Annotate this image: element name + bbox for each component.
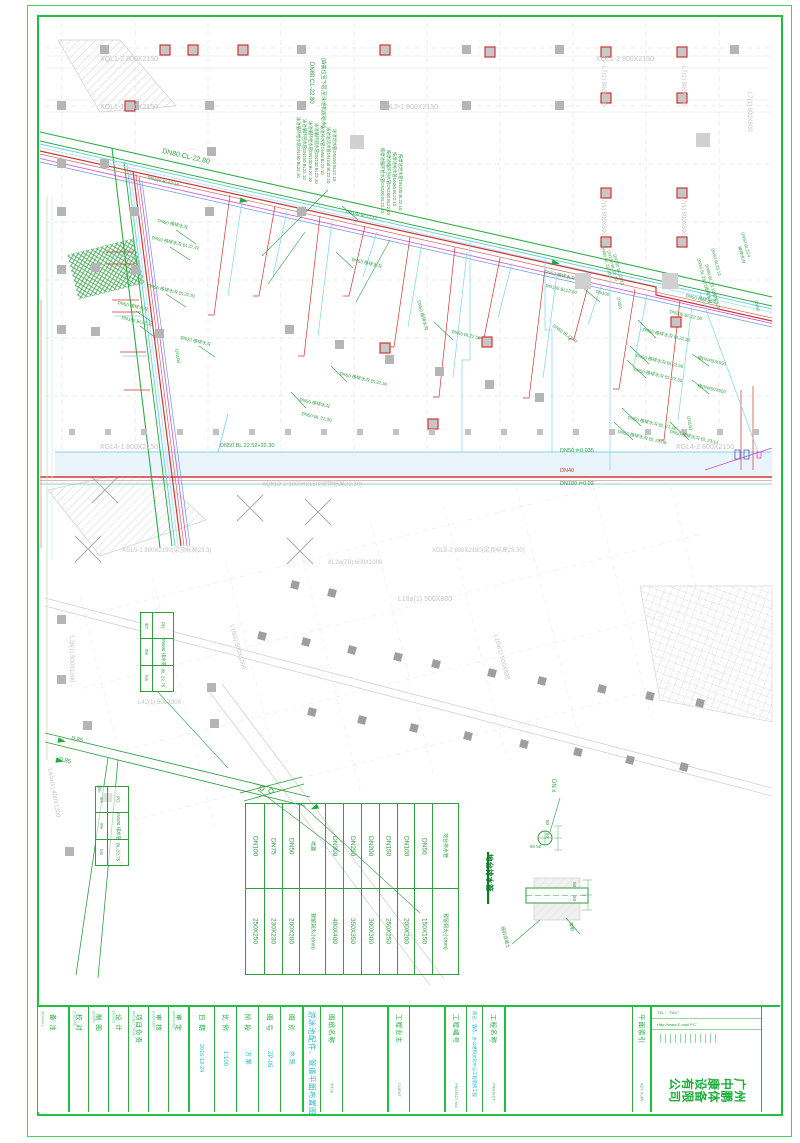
pd-riser-tag: 编号 管径 标高 PD DN100 排水管 BL 22.75 (95, 786, 129, 866)
tb-date-value: 2015-12-24 (198, 1044, 204, 1072)
pd-tag-value: DN100 排水管 (115, 813, 121, 839)
pd-tag-row-label: 管径 (145, 649, 149, 655)
pd-tag-row-label: 编号 (100, 797, 104, 803)
tb-drawing-title: 游泳池配件、管道平面布置图 (302, 1007, 320, 1112)
tb-key-plan-area (504, 1007, 632, 1112)
title-block: REMARKS 备 注 CHECKED 校 对 DRAWN 制 图 DESIGN… (38, 1005, 780, 1112)
pd-tag-value: PD (116, 796, 121, 802)
tb-key-plan-label: 平面索引 KEY PLAN (632, 1007, 650, 1112)
tb-sign-cell: DRAWN 制 图 (88, 1007, 108, 1112)
tb-drawing-no-value: ZP-05 (266, 1051, 273, 1067)
tb-sign-cell: APPROVED 审 定 (168, 1007, 188, 1112)
tb-remarks: REMARKS 备 注 (38, 1007, 68, 1112)
company-contact: Http://www E-mail P.C： (652, 1019, 761, 1031)
tb-project-no: 工程编号 PROJECT NO. (444, 1007, 466, 1112)
pd-tag-value: PD (161, 622, 166, 628)
tb-sign-cell: PROJECT CHIEF 项目负责 (128, 1007, 148, 1112)
project-description: 商业、酒店、办公楼和文化中心工程装修工程 (472, 1011, 477, 1097)
floor-drain-detail (487, 798, 592, 944)
pd-tag-row-label: 标高 (100, 849, 104, 855)
tb-client: 工程业主 CLIENT (387, 1007, 409, 1112)
tb-empty (342, 1007, 387, 1112)
tb-project-label: 工程名称 PROJECT (482, 1007, 504, 1112)
tilted-squares (257, 580, 705, 772)
tb-date: 日 期 2015-12-24 (188, 1007, 214, 1112)
pd-tag-value: DN100 排水管 (160, 639, 166, 665)
tb-stage: 阶 段 方 案 (236, 1007, 258, 1112)
company-name: 广州中鹏康体设备有限公司 (668, 1078, 746, 1106)
pd-riser-tag: 编号 管径 标高 PD DN100 排水管 BL 22.75 (140, 612, 174, 692)
tb-company: TEL： FAX： Http://www E-mail P.C： 广州中鹏康体设… (650, 1007, 761, 1112)
hatch-area (58, 40, 176, 112)
tb-scale: 比 例 1:100 (214, 1007, 236, 1112)
tb-sign-cell: EXAMINED 审 核 (148, 1007, 168, 1112)
pd-tag-value: BL 22.75 (161, 669, 166, 687)
tb-empty (761, 1007, 780, 1112)
tb-remarks-sub: REMARKS (40, 1011, 44, 1027)
tb-title-label: 图纸名称 TITLE (320, 1007, 342, 1112)
company-cert-bars (652, 1030, 761, 1045)
pd-tag-row-label: 管径 (100, 823, 104, 829)
tb-discipline-value: 水 施 (288, 1051, 295, 1065)
pd-tag-value: BL 22.75 (116, 843, 121, 861)
cad-drawing-page: XQL1-2 800X2150XQL1-2 800X2150XQL1-1 800… (0, 0, 800, 1143)
tb-remarks-label: 备 注 (49, 1014, 56, 1032)
tb-empty (409, 1007, 444, 1112)
pd-tag-row-label: 编号 (145, 623, 149, 629)
pd-tag-row-label: 标高 (145, 675, 149, 681)
tb-scale-value: 1:100 (222, 1051, 229, 1066)
drawing-title: 游泳池配件、管道平面布置图 (307, 1011, 315, 1115)
columns-gray (57, 45, 739, 856)
hole-table: DN100250X250 DN75230X230 DN50200X200 地漏预… (245, 803, 459, 975)
company-contact: TEL： FAX： (652, 1007, 761, 1019)
tb-stage-value: 方 案 (244, 1051, 251, 1065)
tb-discipline: 图 别 水 施 (280, 1007, 302, 1112)
stone-hatch-area (640, 586, 772, 722)
tb-drawing-no: 图 号 ZP-05 (258, 1007, 280, 1112)
tb-sign-cell: DESIGN 设 计 (108, 1007, 128, 1112)
tb-sign-cell: CHECKED 校 对 (68, 1007, 88, 1112)
tb-project-desc: 商业、酒店、办公楼和文化中心工程装修工程 (466, 1007, 482, 1112)
